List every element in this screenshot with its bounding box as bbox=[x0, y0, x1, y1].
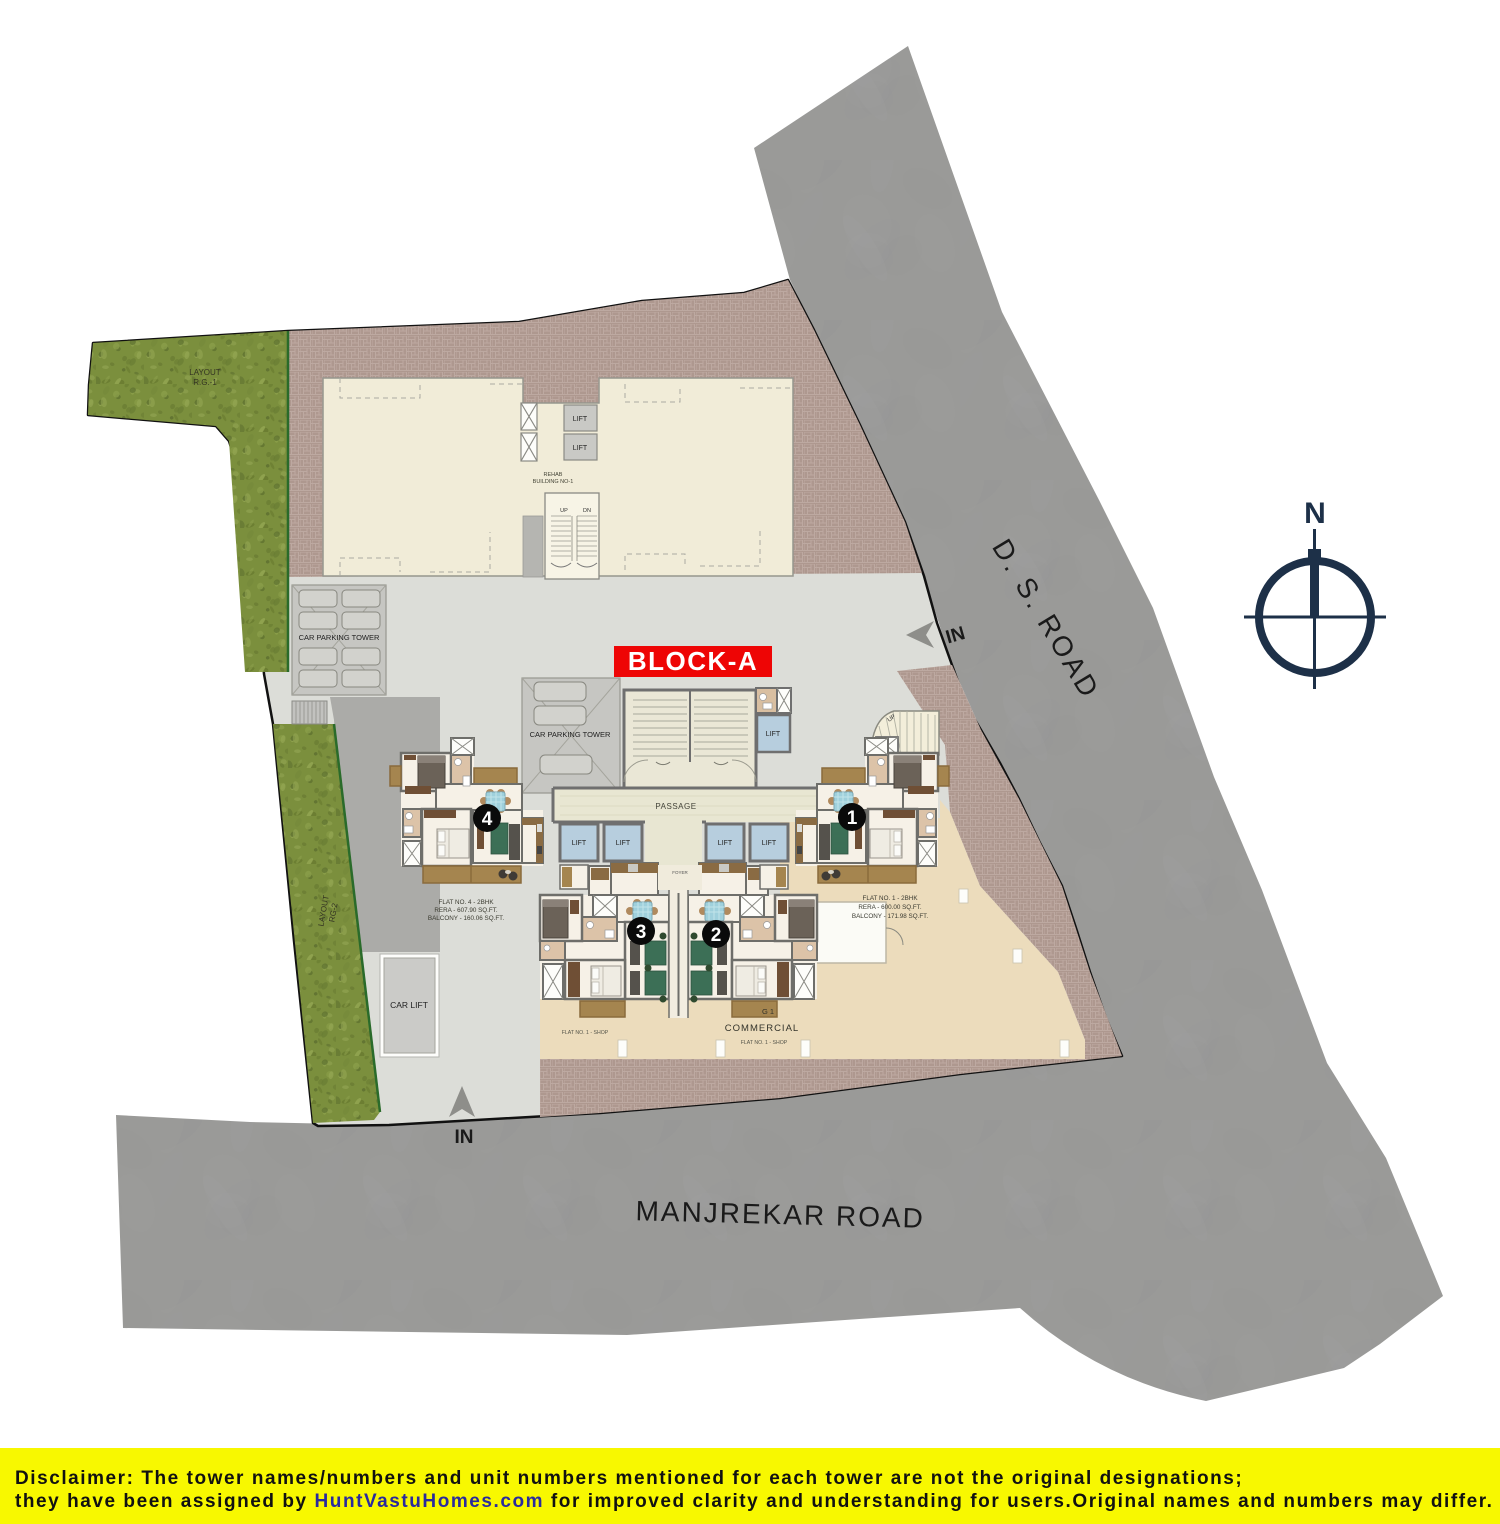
svg-text:R.G.-1: R.G.-1 bbox=[193, 378, 217, 387]
svg-text:BLOCK-A: BLOCK-A bbox=[628, 646, 758, 676]
svg-text:LIFT: LIFT bbox=[616, 840, 631, 847]
svg-text:LIFT: LIFT bbox=[762, 840, 777, 847]
svg-text:LIFT: LIFT bbox=[573, 416, 588, 423]
svg-text:LIFT: LIFT bbox=[573, 445, 588, 452]
svg-text:2: 2 bbox=[711, 925, 722, 946]
svg-text:PASSAGE: PASSAGE bbox=[655, 802, 696, 811]
svg-text:UP: UP bbox=[560, 508, 568, 514]
svg-text:LIFT: LIFT bbox=[718, 840, 733, 847]
svg-text:REHAB: REHAB bbox=[544, 472, 563, 478]
svg-text:1: 1 bbox=[847, 808, 858, 829]
svg-text:LAYOUT: LAYOUT bbox=[189, 368, 221, 377]
svg-text:FLAT NO. 1 - SHOP: FLAT NO. 1 - SHOP bbox=[562, 1030, 609, 1036]
svg-text:BALCONY - 171.98 SQ.FT.: BALCONY - 171.98 SQ.FT. bbox=[852, 913, 928, 920]
svg-text:FLAT NO. 4 - 2BHK: FLAT NO. 4 - 2BHK bbox=[438, 899, 494, 906]
svg-text:G 1: G 1 bbox=[762, 1007, 774, 1016]
svg-text:FLAT NO. 1 - SHOP: FLAT NO. 1 - SHOP bbox=[741, 1040, 788, 1046]
svg-text:LIFT: LIFT bbox=[766, 731, 781, 738]
svg-text:3: 3 bbox=[636, 922, 647, 943]
svg-text:CAR PARKING TOWER: CAR PARKING TOWER bbox=[299, 633, 380, 642]
svg-text:FOYER: FOYER bbox=[672, 870, 688, 875]
svg-text:BALCONY - 160.06 SQ.FT.: BALCONY - 160.06 SQ.FT. bbox=[428, 915, 504, 922]
svg-text:DN: DN bbox=[583, 508, 591, 514]
svg-text:they have been assigned by Hun: they have been assigned by HuntVastuHome… bbox=[15, 1491, 1493, 1512]
svg-text:BUILDING NO-1: BUILDING NO-1 bbox=[533, 479, 574, 485]
svg-text:IN: IN bbox=[455, 1127, 474, 1148]
svg-text:LIFT: LIFT bbox=[572, 840, 587, 847]
svg-text:COMMERCIAL: COMMERCIAL bbox=[725, 1023, 799, 1034]
svg-text:RERA - 600.00 SQ.FT.: RERA - 600.00 SQ.FT. bbox=[858, 904, 922, 911]
svg-text:RERA - 607.90 SQ.FT.: RERA - 607.90 SQ.FT. bbox=[434, 907, 498, 914]
svg-text:4: 4 bbox=[482, 809, 493, 830]
svg-text:N: N bbox=[1304, 497, 1326, 530]
svg-text:Disclaimer: The tower names/nu: Disclaimer: The tower names/numbers and … bbox=[15, 1468, 1243, 1489]
svg-text:CAR LIFT: CAR LIFT bbox=[390, 1000, 428, 1010]
svg-text:CAR PARKING TOWER: CAR PARKING TOWER bbox=[530, 730, 611, 739]
svg-text:FLAT NO. 1 - 2BHK: FLAT NO. 1 - 2BHK bbox=[862, 895, 918, 902]
